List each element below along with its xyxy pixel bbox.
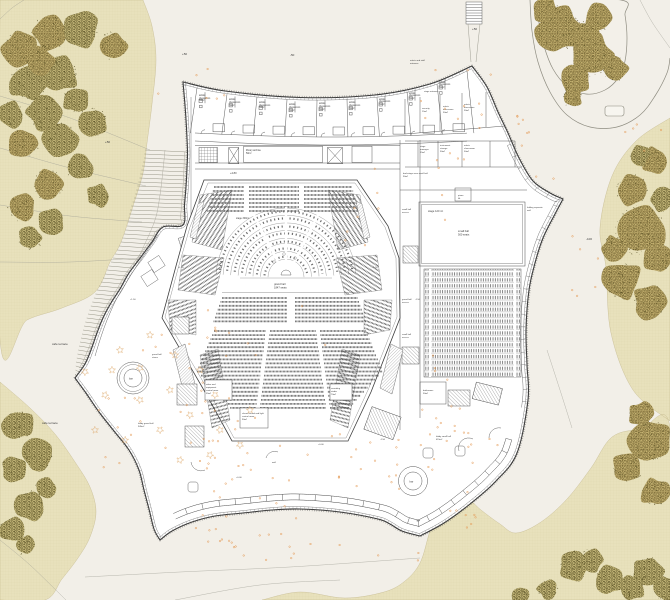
svg-text:security: security (422, 107, 430, 110)
svg-text:500 seats: 500 seats (458, 232, 470, 236)
svg-text:wall: wall (527, 210, 531, 212)
svg-text:15m²: 15m² (422, 110, 427, 113)
svg-text:90m²: 90m² (403, 175, 408, 178)
svg-text:stage: stage (420, 145, 426, 148)
svg-text:bathrooms: bathrooms (423, 389, 434, 392)
svg-text:+50: +50 (182, 52, 187, 56)
svg-text:30m²: 30m² (379, 103, 385, 106)
svg-text:cafe terrace: cafe terrace (42, 421, 58, 425)
svg-text:closed sound and light: closed sound and light (242, 412, 264, 415)
svg-text:bar: bar (129, 377, 133, 381)
svg-text:+4.80: +4.80 (230, 171, 237, 175)
svg-text:lobby small hall: lobby small hall (436, 436, 451, 438)
svg-text:-100: -100 (586, 237, 592, 241)
svg-text:small hall: small hall (402, 209, 412, 211)
svg-text:30m²: 30m² (259, 106, 265, 109)
svg-text:artists: artists (464, 103, 471, 106)
svg-text:access: access (402, 337, 410, 339)
svg-text:artists and staff: artists and staff (410, 59, 425, 62)
svg-text:storage: storage (440, 147, 448, 150)
svg-text:lobby grand hall: lobby grand hall (138, 422, 154, 425)
svg-text:piano: piano (458, 195, 464, 197)
svg-text:artists: artists (443, 105, 450, 108)
svg-text:-1.50: -1.50 (380, 439, 386, 441)
svg-text:instrument: instrument (440, 144, 451, 147)
svg-text:wall: wall (272, 462, 276, 464)
svg-text:+50: +50 (472, 27, 477, 31)
svg-text:30m²: 30m² (289, 109, 295, 112)
svg-text:30m²: 30m² (319, 108, 325, 111)
svg-text:70m²: 70m² (331, 393, 336, 396)
svg-text:stage entrance: stage entrance (424, 90, 439, 93)
svg-text:55m²: 55m² (206, 392, 211, 395)
svg-text:30m²: 30m² (229, 104, 235, 107)
svg-text:stores: stores (152, 356, 159, 359)
svg-text:30m²: 30m² (423, 392, 428, 395)
svg-text:+1.50: +1.50 (178, 267, 184, 269)
svg-text:access: access (402, 212, 410, 214)
svg-text:access: access (402, 302, 410, 304)
svg-text:folding separate: folding separate (527, 206, 543, 209)
svg-text:control room: control room (206, 389, 218, 392)
svg-text:bar: bar (410, 480, 414, 484)
svg-text:equipment: equipment (206, 386, 217, 389)
svg-text:-1.50: -1.50 (415, 299, 421, 301)
svg-text:+0.00: +0.00 (318, 444, 324, 446)
svg-text:50m²: 50m² (464, 150, 469, 153)
svg-text:30m²: 30m² (439, 86, 445, 89)
svg-text:415m²: 415m² (436, 438, 442, 441)
svg-text:30m²: 30m² (464, 109, 469, 112)
svg-text:30m²: 30m² (349, 107, 355, 110)
svg-text:control room: control room (242, 415, 254, 418)
svg-text:dressroom: dressroom (464, 106, 475, 109)
svg-text:50m²: 50m² (246, 152, 252, 155)
svg-text:small hall: small hall (402, 334, 412, 336)
svg-text:+1.50: +1.50 (372, 267, 378, 269)
svg-text:30m²: 30m² (409, 97, 415, 100)
svg-text:artists: artists (464, 144, 471, 147)
svg-text:cafe terrace: cafe terrace (52, 342, 68, 346)
svg-text:90m²: 90m² (242, 418, 247, 421)
svg-text:studio: studio (331, 390, 338, 393)
svg-text:grand hall: grand hall (402, 298, 412, 301)
svg-text:15m²: 15m² (420, 151, 425, 154)
svg-text:+0.00: +0.00 (236, 477, 242, 479)
svg-text:1847 seats: 1847 seats (274, 286, 287, 290)
svg-text:+50: +50 (105, 140, 110, 144)
svg-text:stage 120 m²: stage 120 m² (428, 209, 443, 213)
svg-text:entrance: entrance (410, 62, 419, 65)
svg-text:backstage area small hall: backstage area small hall (403, 172, 428, 175)
svg-text:manager: manager (420, 148, 429, 151)
svg-text:recording: recording (331, 387, 341, 390)
svg-text:shoesroom: shoesroom (464, 147, 475, 150)
svg-text:video and: video and (206, 384, 216, 386)
svg-text:grand hall: grand hall (274, 282, 286, 286)
svg-text:grand hall: grand hall (152, 353, 162, 356)
svg-text:stage 300m²: stage 300m² (236, 217, 249, 220)
svg-text:small hall: small hall (458, 229, 469, 233)
svg-text:30m²: 30m² (199, 99, 205, 102)
svg-text:945m²: 945m² (138, 425, 144, 428)
svg-text:30m²: 30m² (440, 150, 445, 153)
svg-text:-50: -50 (290, 53, 295, 57)
svg-text:+1.50: +1.50 (130, 299, 136, 301)
svg-text:30m²: 30m² (443, 111, 448, 114)
